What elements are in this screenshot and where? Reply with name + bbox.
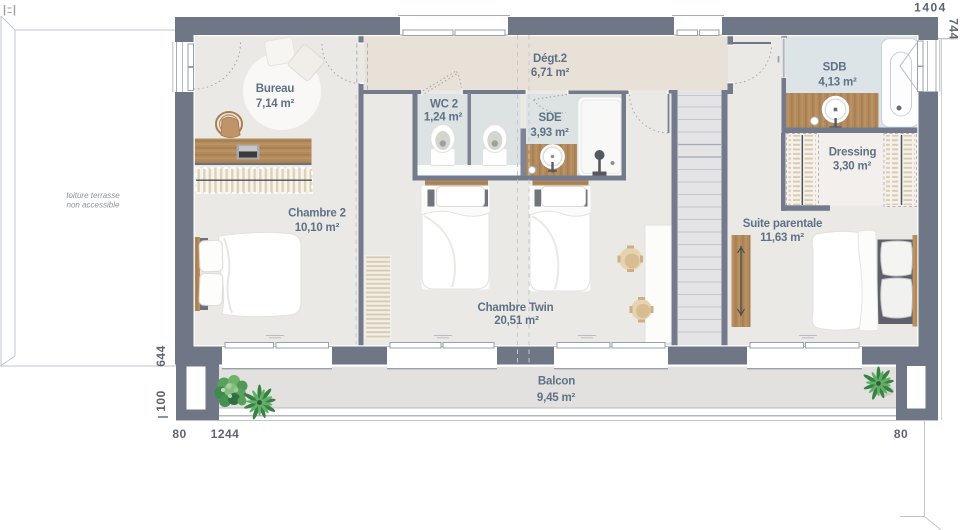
- svg-text:Bureau: Bureau: [256, 83, 295, 95]
- svg-text:10,10 m²: 10,10 m²: [295, 222, 340, 234]
- svg-text:80: 80: [172, 427, 186, 441]
- svg-text:Dressing: Dressing: [829, 147, 877, 159]
- svg-text:3,93 m²: 3,93 m²: [530, 127, 569, 139]
- svg-text:7,14 m²: 7,14 m²: [256, 98, 295, 110]
- svg-text:non accessible: non accessible: [67, 201, 120, 210]
- svg-text:Chambre Twin: Chambre Twin: [478, 302, 554, 314]
- svg-text:Suite parentale: Suite parentale: [743, 218, 822, 230]
- svg-text:1244: 1244: [211, 427, 240, 441]
- svg-text:SDE: SDE: [538, 112, 562, 124]
- svg-text:644: 644: [154, 345, 168, 367]
- svg-text:100: 100: [154, 390, 168, 412]
- svg-text:SDB: SDB: [823, 62, 847, 74]
- svg-text:WC 2: WC 2: [430, 99, 458, 111]
- svg-text:Dégt.2: Dégt.2: [533, 53, 567, 65]
- svg-text:toiture terrasse: toiture terrasse: [66, 191, 120, 200]
- svg-text:9,45 m²: 9,45 m²: [537, 392, 576, 404]
- svg-text:3,30 m²: 3,30 m²: [833, 161, 872, 173]
- svg-text:Chambre 2: Chambre 2: [288, 208, 346, 220]
- svg-text:1,24 m²: 1,24 m²: [424, 112, 463, 124]
- svg-text:744: 744: [947, 18, 960, 40]
- svg-text:20,51 m²: 20,51 m²: [494, 315, 539, 327]
- svg-text:80: 80: [894, 427, 908, 441]
- svg-text:1404: 1404: [914, 1, 947, 15]
- svg-text:11,63 m²: 11,63 m²: [760, 232, 804, 244]
- svg-text:6,71 m²: 6,71 m²: [531, 67, 570, 79]
- svg-text:Balcon: Balcon: [538, 376, 575, 388]
- svg-text:4,13 m²: 4,13 m²: [818, 77, 857, 89]
